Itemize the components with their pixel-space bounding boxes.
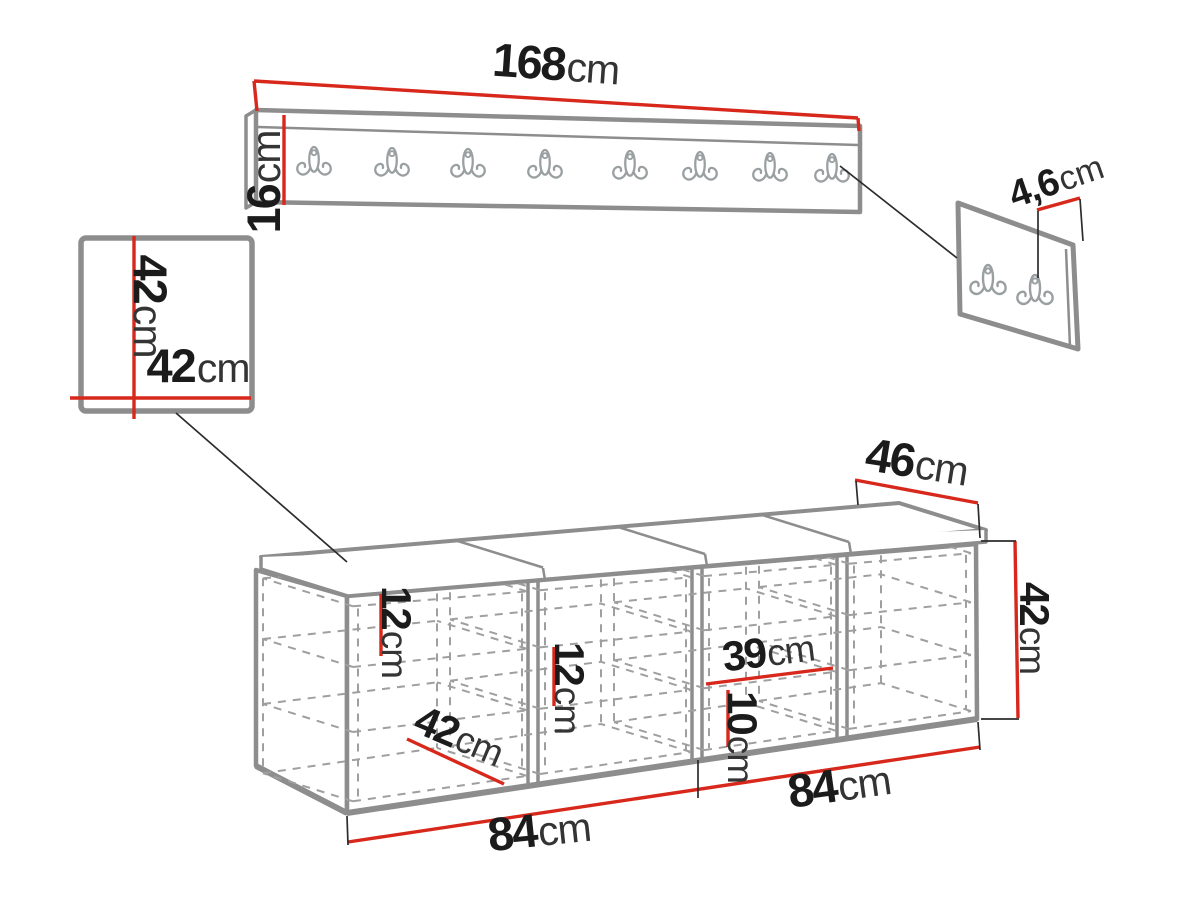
diagram-canvas: 168cm 16cm 42cm 42cm 4,6cm 46cm 42cm 12c… — [0, 0, 1200, 900]
hook-panel-face — [958, 203, 1078, 349]
bench-left-side — [256, 570, 347, 813]
label-rack-height: 16cm — [237, 131, 290, 234]
leader-line-mirror-to-bench — [176, 413, 347, 562]
furniture-dimension-diagram: 168cm 16cm 42cm 42cm 4,6cm 46cm 42cm 12c… — [0, 0, 1200, 900]
label-half-width-left: 84cm — [485, 798, 593, 861]
label-half-width-right: 84cm — [784, 751, 893, 818]
coat-rack-panel — [246, 110, 860, 212]
label-rack-width: 168cm — [491, 33, 621, 95]
label-shelf-gap-2: 12cm — [546, 642, 593, 734]
label-shelf-gap-1: 12cm — [373, 586, 420, 678]
label-mirror-width: 42cm — [147, 339, 250, 392]
label-bench-height: 42cm — [1011, 582, 1058, 674]
hook-panel — [958, 203, 1078, 349]
label-bottom-gap: 10cm — [719, 691, 766, 783]
